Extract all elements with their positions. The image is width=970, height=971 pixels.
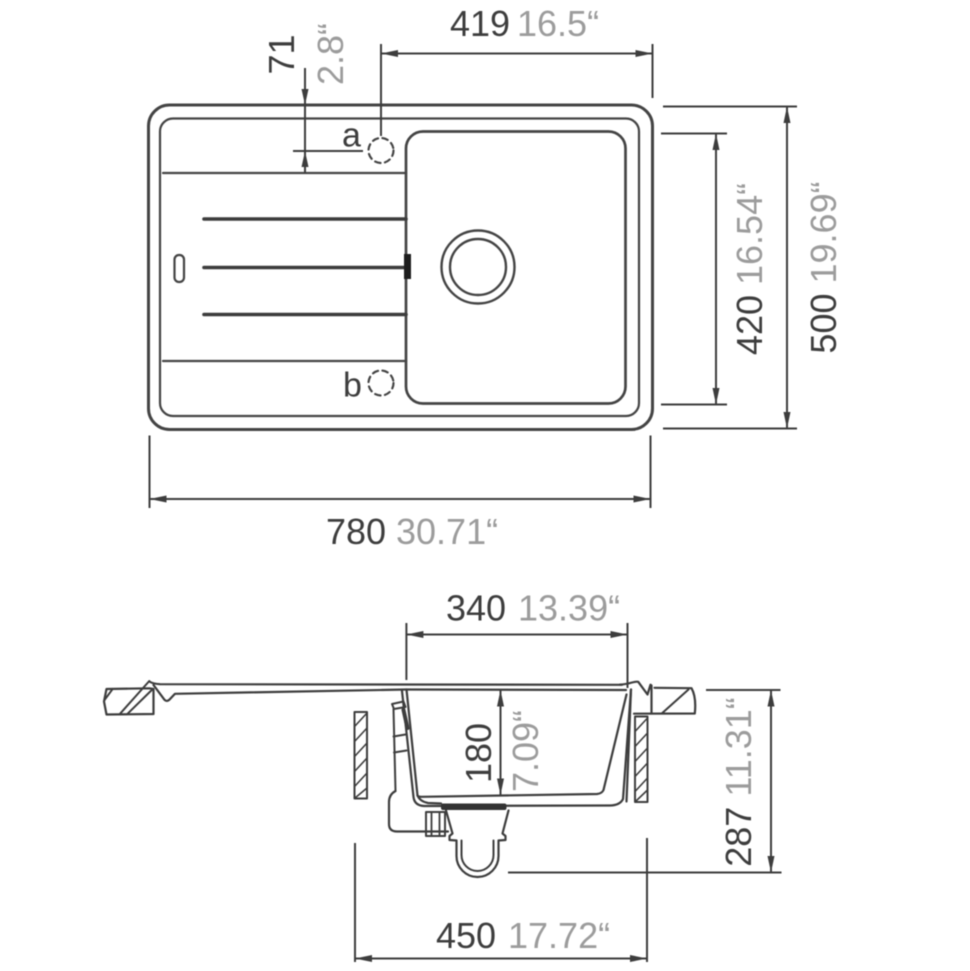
svg-text:500 19.69“: 500 19.69“ [803, 181, 844, 353]
svg-text:340: 340 [446, 588, 506, 629]
svg-text:71: 71 [261, 34, 302, 74]
svg-text:287 11.31“: 287 11.31“ [718, 697, 759, 866]
svg-text:419: 419 [450, 3, 510, 44]
svg-text:450: 450 [436, 915, 496, 956]
svg-text:30.71“: 30.71“ [396, 511, 498, 552]
svg-text:17.72“: 17.72“ [508, 915, 610, 956]
svg-text:13.39“: 13.39“ [518, 588, 620, 629]
svg-text:2.8“: 2.8“ [310, 23, 351, 85]
svg-text:180: 180 [458, 723, 499, 783]
svg-text:780: 780 [326, 511, 386, 552]
svg-text:a: a [342, 117, 361, 155]
svg-text:420 16.54“: 420 16.54“ [729, 183, 770, 355]
svg-text:16.5“: 16.5“ [517, 3, 599, 44]
svg-text:7.09“: 7.09“ [505, 710, 546, 792]
svg-text:b: b [343, 367, 362, 405]
